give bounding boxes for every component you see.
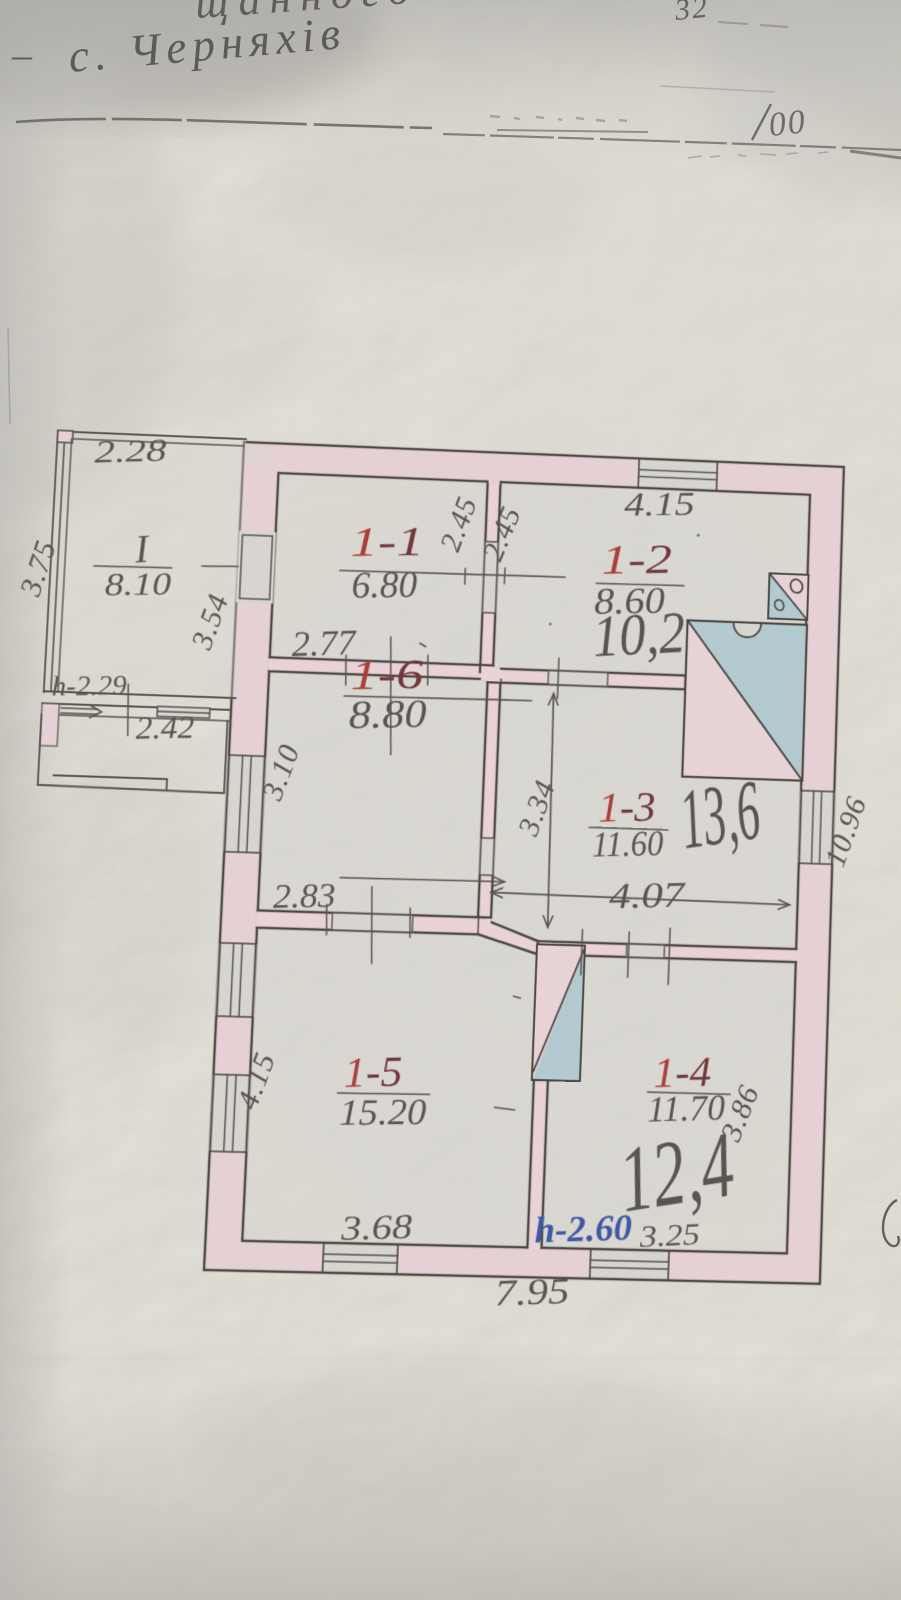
svg-text:h-2.29: h-2.29: [52, 669, 127, 702]
svg-text:6.80: 6.80: [351, 565, 417, 607]
svg-text:2.83: 2.83: [273, 877, 336, 916]
svg-text:4.15: 4.15: [624, 486, 695, 523]
svg-text:3.25: 3.25: [638, 1218, 700, 1254]
svg-text:11.60: 11.60: [592, 823, 664, 865]
svg-text:1-2: 1-2: [601, 536, 673, 583]
svg-text:10,2: 10,2: [591, 599, 687, 669]
svg-text:2.77: 2.77: [291, 622, 357, 664]
svg-text:13,6: 13,6: [674, 762, 766, 867]
svg-text:1-1: 1-1: [350, 518, 424, 565]
svg-text:3.68: 3.68: [340, 1208, 413, 1249]
svg-text:4.07: 4.07: [609, 874, 687, 916]
svg-text:15.20: 15.20: [339, 1091, 427, 1133]
svg-text:00: 00: [767, 103, 809, 144]
svg-text:1-5: 1-5: [344, 1047, 403, 1096]
svg-text:8.80: 8.80: [349, 691, 428, 737]
svg-text:2.28: 2.28: [94, 433, 167, 470]
svg-text:2.42: 2.42: [136, 709, 195, 746]
svg-text:32: 32: [672, 0, 710, 27]
svg-text:7.95: 7.95: [494, 1270, 569, 1314]
svg-text:–: –: [11, 32, 33, 77]
svg-text:h-2.60: h-2.60: [534, 1206, 632, 1250]
svg-text:8.10: 8.10: [105, 566, 172, 602]
